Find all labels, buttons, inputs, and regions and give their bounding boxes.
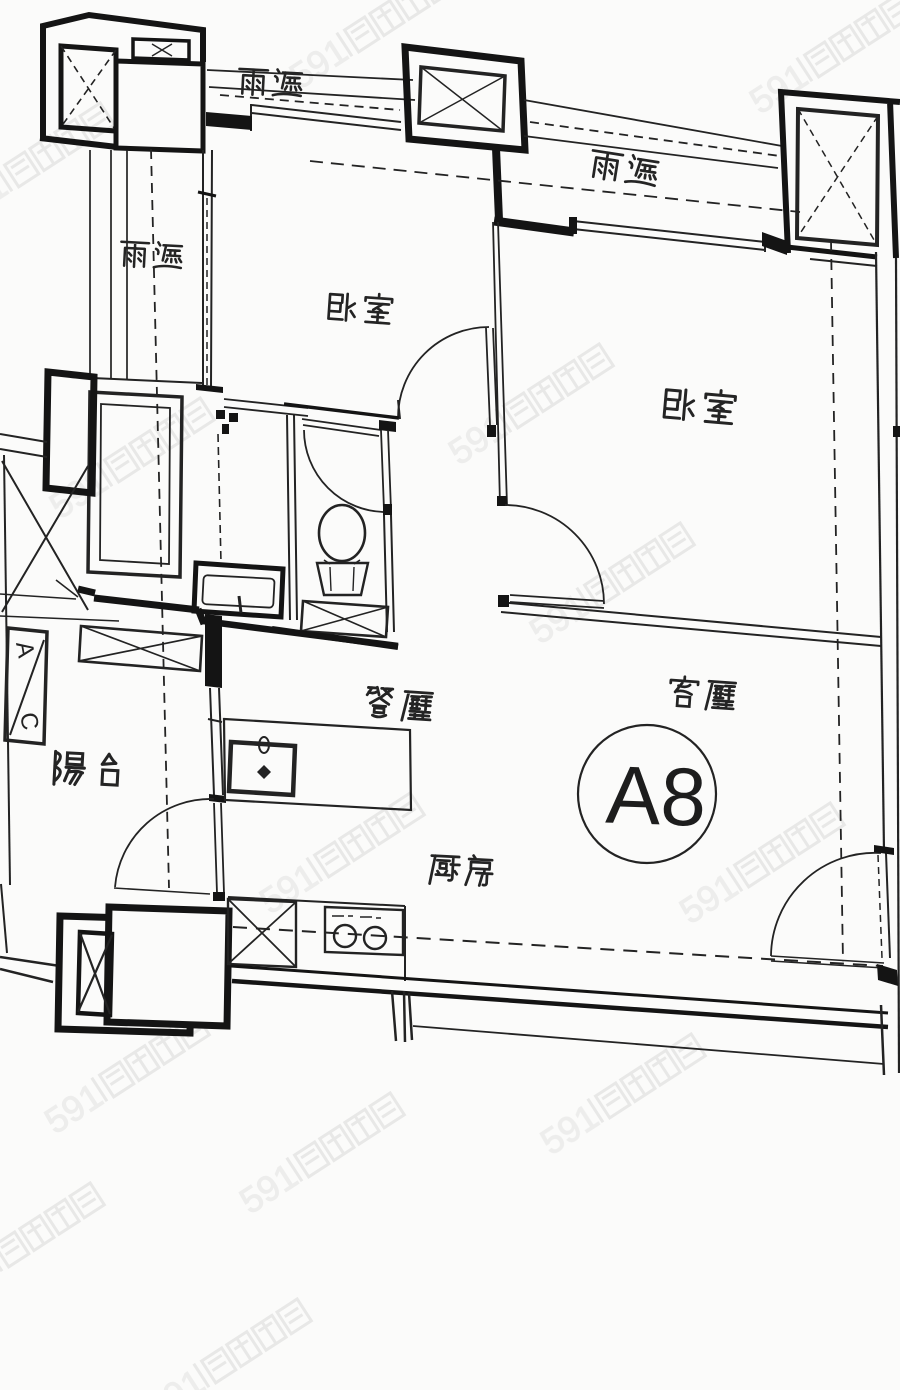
svg-text:A8: A8 [604,749,707,843]
